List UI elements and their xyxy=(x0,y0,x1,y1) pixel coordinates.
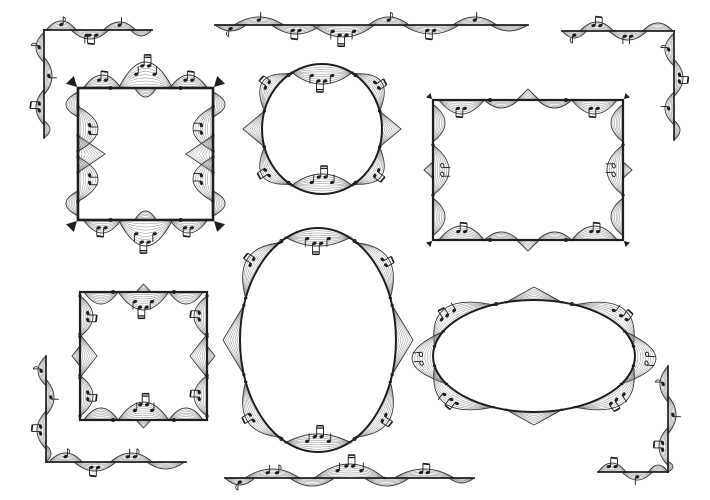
note-glyph xyxy=(337,33,349,46)
staff-lobe xyxy=(66,191,78,216)
staff-lobe xyxy=(433,198,445,236)
note-glyph xyxy=(139,240,151,253)
staff-lobe xyxy=(648,465,668,472)
staff-lobe xyxy=(570,223,619,241)
note-glyph xyxy=(137,305,149,318)
staff-lobe xyxy=(71,30,109,44)
rectangle-frame-music xyxy=(424,89,632,251)
staff-lobe xyxy=(368,12,409,25)
corner-wedge xyxy=(66,76,77,87)
staff-lobe xyxy=(433,302,495,347)
staff-lobe xyxy=(437,223,486,241)
staff-lobe xyxy=(30,89,44,125)
staff-lobe xyxy=(190,374,208,417)
staff-lobe xyxy=(674,120,680,140)
note-glyph xyxy=(316,79,328,92)
divider-ornament-top xyxy=(215,12,528,46)
staff-lobe xyxy=(437,99,486,118)
note-glyph xyxy=(661,106,671,111)
square-frame-music-outward xyxy=(66,55,225,253)
staff-lobe xyxy=(598,458,626,472)
note-glyph xyxy=(344,455,356,468)
staff-lobe xyxy=(313,455,386,479)
staff-lobe xyxy=(44,57,57,95)
staff-lobe xyxy=(611,198,623,236)
staff-lobe xyxy=(186,134,215,173)
staff-lobe xyxy=(431,144,450,197)
staff-lobe xyxy=(661,92,674,125)
oval-frame-music-vertical xyxy=(223,228,413,452)
corner-ornament-bottom-right xyxy=(598,366,681,485)
staff-lobe xyxy=(609,31,647,44)
staff-lobe xyxy=(290,67,353,92)
staff-lobe xyxy=(78,333,97,379)
staff-lobe xyxy=(661,33,674,66)
staff-lobe xyxy=(580,17,614,31)
staff-lobe xyxy=(135,88,157,97)
corner-wedge xyxy=(624,241,630,247)
frame-line xyxy=(262,64,382,194)
staff-lobe xyxy=(117,291,171,318)
frame-line xyxy=(80,292,207,420)
staff-lobe xyxy=(312,25,375,46)
staff-lobe xyxy=(213,191,225,216)
staff-lobe xyxy=(82,71,123,89)
staff-lobe xyxy=(433,104,445,142)
corner-wedge xyxy=(624,93,630,99)
staff-lobe xyxy=(355,242,395,299)
staff-lobe xyxy=(215,25,246,37)
staff-lobe xyxy=(110,449,152,462)
staff-lobe xyxy=(290,478,335,486)
note-glyph xyxy=(413,360,424,366)
staff-lobe xyxy=(66,92,78,117)
frame-line xyxy=(433,300,635,412)
square-frame-music-inward xyxy=(72,284,215,428)
staff-lobe xyxy=(573,302,635,347)
corner-wedge xyxy=(426,93,432,99)
staff-lobe xyxy=(190,333,209,379)
staff-lobe xyxy=(424,162,433,179)
staff-lobe xyxy=(213,92,225,117)
staff-lobe xyxy=(562,31,587,43)
staff-lobe xyxy=(76,105,98,152)
note-glyph xyxy=(622,34,627,44)
staff-lobe xyxy=(364,478,409,486)
staff-lobe xyxy=(44,121,50,138)
staff-lobe xyxy=(611,104,623,142)
staff-lobe xyxy=(136,284,151,292)
music-frames-svg xyxy=(0,0,710,500)
staff-lobe xyxy=(570,99,619,118)
staff-lobe xyxy=(271,25,321,39)
staff-lobe xyxy=(352,146,387,185)
frame-line xyxy=(433,100,623,240)
staff-lobe xyxy=(257,73,292,112)
staff-lobe xyxy=(117,219,174,253)
staff-lobe xyxy=(136,420,151,428)
note-glyph xyxy=(645,352,656,358)
staff-lobe xyxy=(135,211,157,220)
staff-lobe xyxy=(72,346,80,366)
staff-lobe xyxy=(193,156,215,203)
staff-lobe xyxy=(256,146,292,185)
staff-lobe xyxy=(78,295,96,338)
staff-lobe xyxy=(290,166,353,191)
staff-lobe xyxy=(285,231,352,255)
staff-lobe xyxy=(130,30,152,36)
staff-lobe xyxy=(412,330,448,385)
corner-wedge xyxy=(214,76,225,87)
staff-lobe xyxy=(517,240,540,251)
staff-lobe xyxy=(31,32,44,62)
staff-lobe xyxy=(76,134,105,173)
note-glyph xyxy=(138,394,150,407)
musical-frames-illustration xyxy=(0,0,710,500)
staff-lobe xyxy=(234,12,284,25)
corner-ornament-top-right xyxy=(562,17,688,140)
staff-lobe xyxy=(33,356,46,386)
staff-lobe xyxy=(674,59,688,96)
staff-lobe xyxy=(245,465,300,478)
staff-lobe xyxy=(655,366,668,402)
corner-wedge xyxy=(66,221,77,232)
corner-wedge xyxy=(426,241,432,247)
staff-lobe xyxy=(46,17,76,30)
note-glyph xyxy=(140,55,152,68)
staff-lobe xyxy=(620,330,656,385)
staff-lobe xyxy=(654,427,668,465)
staff-lobe xyxy=(241,381,281,438)
staff-lobe xyxy=(285,426,352,450)
frame-line xyxy=(240,228,396,452)
staff-lobe xyxy=(74,462,116,476)
staff-lobe xyxy=(82,219,123,237)
staff-lobe xyxy=(32,411,46,449)
staff-lobe xyxy=(190,295,208,338)
divider-ornament-bottom xyxy=(225,455,474,490)
staff-lobe xyxy=(394,464,454,478)
note-glyph xyxy=(413,352,424,358)
staff-lobe xyxy=(207,346,215,366)
staff-lobe xyxy=(517,89,540,100)
staff-lobe xyxy=(78,374,96,417)
staff-lobe xyxy=(49,449,83,462)
circle-frame-music xyxy=(243,64,401,194)
staff-lobe xyxy=(103,17,135,30)
staff-lobe xyxy=(168,219,209,237)
note-glyph xyxy=(312,241,324,254)
note-glyph xyxy=(312,426,324,439)
staff-lobe xyxy=(453,12,497,25)
staff-lobe xyxy=(168,71,209,89)
note-glyph xyxy=(316,166,328,179)
staff-lobe xyxy=(117,55,174,89)
corner-wedge xyxy=(214,221,225,232)
staff-lobe xyxy=(623,162,632,179)
staff-lobe xyxy=(147,462,185,469)
staff-lobe xyxy=(117,394,171,421)
staff-lobe xyxy=(643,23,673,31)
staff-lobe xyxy=(606,144,625,197)
staff-lobe xyxy=(352,73,388,112)
staff-lobe xyxy=(46,379,59,415)
staff-lobe xyxy=(403,25,459,39)
staff-lobe xyxy=(225,478,255,490)
staff-lobe xyxy=(668,396,681,434)
staff-lobe xyxy=(622,472,653,485)
ellipse-frame-music-horizontal xyxy=(412,287,656,425)
